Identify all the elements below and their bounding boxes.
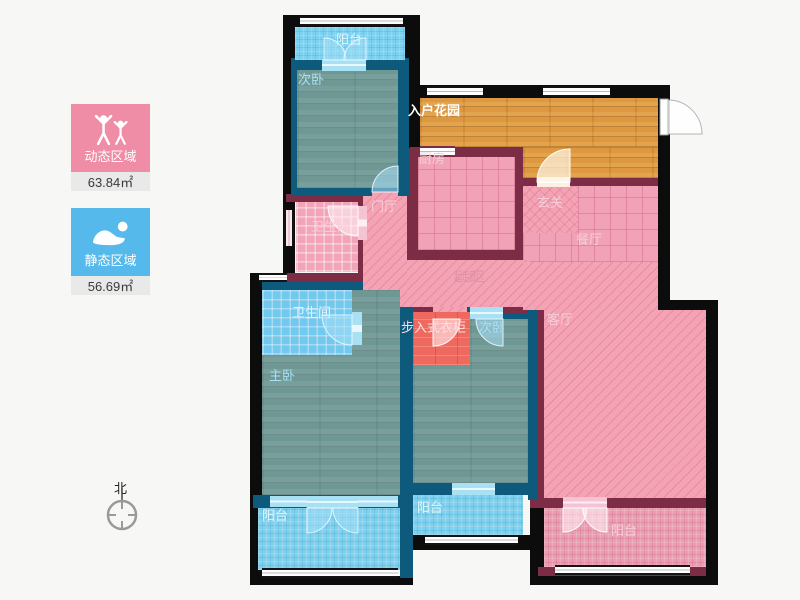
room-label-balcony-living: 阳台 [611,524,637,538]
room-label-hallway: 玄关 [537,196,563,210]
room-label-closet: 步入式衣柜 [401,321,466,335]
room-label-living: 客厅 [547,313,573,327]
room-label-bedroom-top: 次卧 [298,73,324,87]
door-arc [583,508,607,532]
room-label-foyer: 门厅 [371,200,397,214]
room-label-bedroom-mid: 次卧 [479,321,505,335]
room-label-balcony-master: 阳台 [262,509,288,523]
room-label-bath-top: 卫生间 [311,220,350,234]
door-arc [333,508,358,533]
room-label-kitchen: 厨房 [419,152,445,166]
door-arc [372,166,398,192]
entry-door-arc [668,100,702,134]
door-arc [307,508,332,533]
door-arc [537,149,570,182]
room-label-corridor: 起走廊区 [454,270,484,284]
room-label-master: 主卧 [269,369,295,383]
floorplan-canvas: 动态区域 63.84㎡ 静态区域 56.69㎡ 北 [0,0,800,600]
room-label-entry-garden: 入户花园 [408,104,460,118]
room-label-bath-master: 卫生间 [292,306,331,320]
entry-door-leaf [660,99,668,135]
door-arc-layer [0,0,800,600]
room-label-dining: 餐厅 [576,233,602,247]
room-label-balcony-mid: 阳台 [417,501,443,515]
room-label-balcony-top: 阳台 [336,33,362,47]
